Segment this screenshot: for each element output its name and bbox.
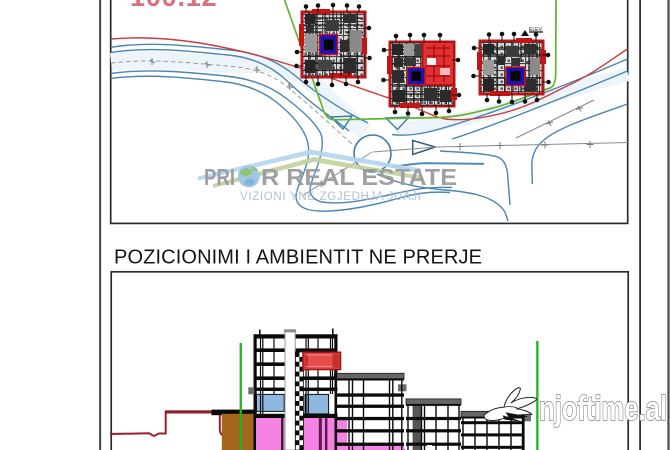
svg-text:ELEV.: ELEV. bbox=[529, 27, 543, 33]
svg-text:PRI: PRI bbox=[204, 164, 235, 190]
svg-text:VIZIONI YNE ZGJEDHJA JUAJI: VIZIONI YNE ZGJEDHJA JUAJI bbox=[240, 191, 421, 203]
svg-text:POZICIONIMI I AMBIENTIT NE PRE: POZICIONIMI I AMBIENTIT NE PRERJE bbox=[114, 247, 482, 269]
svg-text:100.12: 100.12 bbox=[130, 0, 217, 12]
svg-text:njoftime.al: njoftime.al bbox=[539, 390, 667, 428]
svg-text:R REAL ESTATE: R REAL ESTATE bbox=[261, 164, 457, 190]
